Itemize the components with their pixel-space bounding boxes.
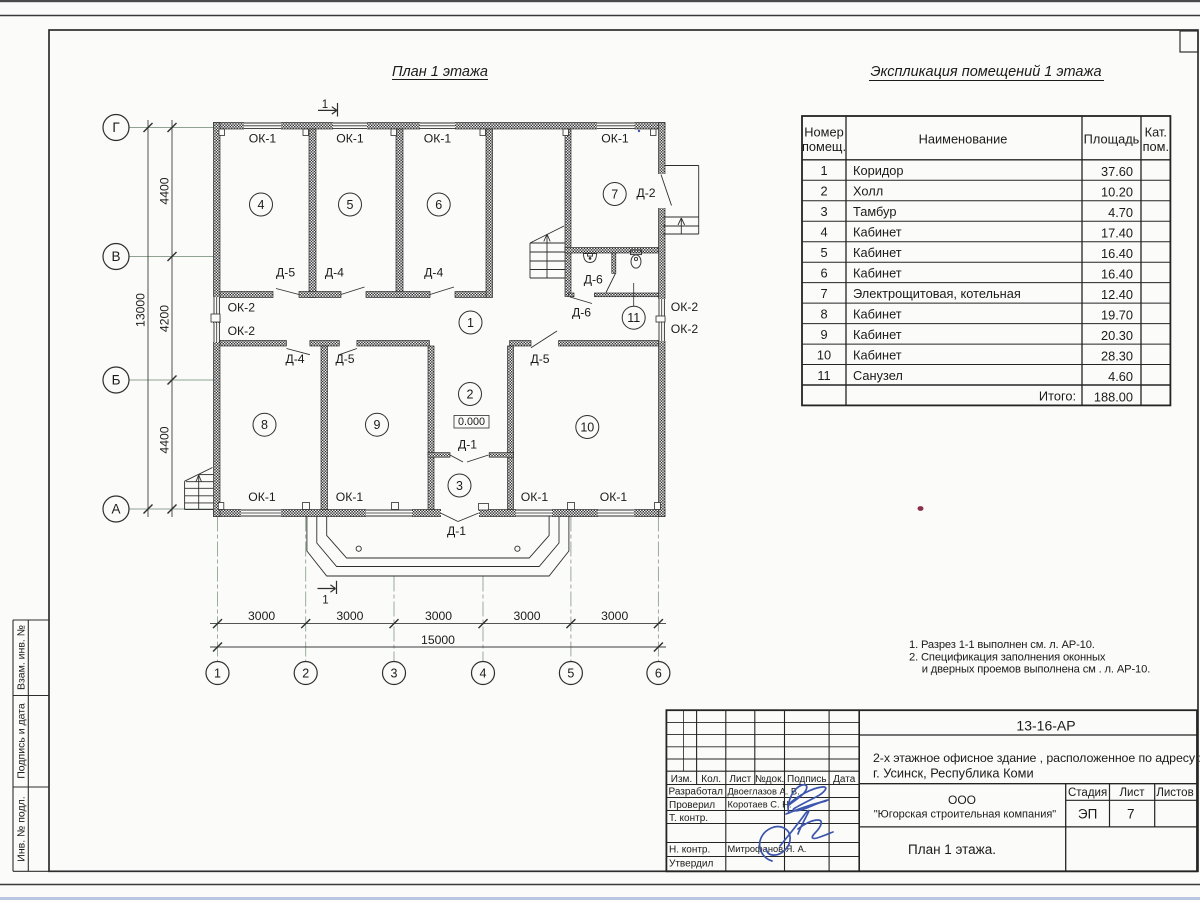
svg-text:ОК-2: ОК-2 (228, 324, 256, 338)
svg-text:Взам. инв. №: Взам. инв. № (16, 625, 28, 690)
svg-text:Итого:: Итого: (1039, 388, 1076, 403)
svg-text:1. Разрез 1-1 выполнен см. л.: 1. Разрез 1-1 выполнен см. л. АР-10. (909, 639, 1095, 651)
svg-text:Коридор: Коридор (853, 163, 904, 178)
svg-text:1: 1 (467, 316, 474, 330)
svg-text:Н. контр.: Н. контр. (669, 845, 710, 856)
svg-text:4400: 4400 (158, 426, 172, 453)
svg-text:13000: 13000 (134, 293, 148, 327)
svg-text:9: 9 (374, 418, 381, 432)
svg-text:Кол.: Кол. (701, 774, 721, 785)
svg-text:Тамбур: Тамбур (853, 204, 896, 219)
svg-text:ОК-2: ОК-2 (671, 322, 699, 336)
svg-text:3000: 3000 (336, 609, 363, 623)
svg-text:2: 2 (302, 666, 309, 680)
svg-text:4400: 4400 (158, 177, 172, 204)
svg-text:ОК-1: ОК-1 (336, 490, 364, 504)
svg-text:8: 8 (820, 306, 827, 321)
svg-text:6: 6 (655, 666, 662, 680)
svg-text:Д-6: Д-6 (584, 273, 603, 287)
svg-text:Площадь: Площадь (1084, 132, 1140, 147)
svg-text:и дверных проемов выполнена см: и дверных проемов выполнена см . л. АР-1… (922, 664, 1151, 676)
svg-text:Б: Б (112, 373, 121, 388)
svg-text:2: 2 (467, 388, 474, 402)
svg-text:7: 7 (820, 286, 827, 301)
svg-text:4.60: 4.60 (1108, 369, 1133, 384)
svg-text:11: 11 (817, 368, 830, 383)
svg-text:8: 8 (261, 418, 268, 432)
svg-text:Листов: Листов (1156, 787, 1193, 799)
svg-text:3000: 3000 (248, 609, 275, 623)
svg-text:ООО: ООО (948, 793, 976, 807)
svg-text:Электрощитовая, котельная: Электрощитовая, котельная (853, 286, 1021, 301)
svg-text:ОК-2: ОК-2 (671, 300, 699, 314)
svg-text:1: 1 (214, 666, 221, 680)
svg-text:3: 3 (391, 666, 398, 680)
svg-text:4: 4 (258, 198, 265, 212)
svg-text:Экспликация помещений 1 этажа: Экспликация помещений 1 этажа (870, 64, 1101, 80)
svg-text:7: 7 (611, 188, 618, 202)
svg-text:помещ.: помещ. (802, 139, 846, 154)
svg-text:Разработал: Разработал (669, 786, 724, 798)
svg-text:А: А (111, 502, 120, 517)
svg-text:План 1 этажа.: План 1 этажа. (908, 842, 996, 857)
svg-text:3: 3 (820, 204, 827, 219)
svg-text:3: 3 (456, 479, 463, 493)
svg-text:Д-4: Д-4 (285, 352, 304, 366)
svg-text:ОК-1: ОК-1 (521, 490, 549, 504)
svg-text:4200: 4200 (158, 305, 172, 332)
svg-text:3000: 3000 (425, 609, 452, 623)
svg-text:28.30: 28.30 (1101, 348, 1133, 363)
svg-text:5: 5 (567, 666, 574, 680)
svg-text:Двоеглазов А. В.: Двоеглазов А. В. (728, 786, 800, 796)
svg-text:ОК-2: ОК-2 (228, 301, 256, 315)
svg-text:Коротаев С. Н.: Коротаев С. Н. (728, 800, 792, 810)
svg-text:2: 2 (820, 184, 827, 199)
svg-text:Кат.: Кат. (1145, 125, 1167, 140)
svg-text:ЭП: ЭП (1078, 807, 1097, 822)
svg-text:13-16-АР: 13-16-АР (1016, 718, 1075, 734)
svg-text:12.40: 12.40 (1101, 287, 1133, 302)
svg-text:3000: 3000 (601, 609, 628, 623)
svg-text:10.20: 10.20 (1101, 185, 1133, 200)
svg-text:4: 4 (820, 225, 827, 240)
svg-text:Дата: Дата (833, 774, 856, 785)
svg-text:Стадия: Стадия (1068, 787, 1107, 799)
svg-text:В: В (111, 249, 120, 264)
svg-text:20.30: 20.30 (1101, 328, 1133, 343)
svg-text:Кабинет: Кабинет (853, 245, 902, 260)
svg-text:Номер: Номер (804, 125, 843, 140)
svg-text:Д-5: Д-5 (335, 352, 354, 366)
svg-text:Д-5: Д-5 (530, 352, 549, 366)
svg-text:6: 6 (820, 265, 827, 280)
svg-text:2. Спецификация заполнения око: 2. Спецификация заполнения оконных (909, 652, 1106, 664)
svg-text:Лист: Лист (729, 774, 751, 785)
svg-text:Проверил: Проверил (669, 800, 715, 811)
svg-text:Д-4: Д-4 (424, 266, 443, 280)
svg-text:9: 9 (820, 327, 827, 342)
svg-text:Кабинет: Кабинет (853, 225, 902, 240)
svg-text:Санузел: Санузел (853, 368, 903, 383)
svg-text:Д-1: Д-1 (447, 524, 466, 538)
svg-text:Подпись и дата: Подпись и дата (16, 703, 28, 779)
svg-text:1: 1 (820, 163, 827, 178)
svg-text:188.00: 188.00 (1094, 389, 1133, 404)
svg-text:ОК-1: ОК-1 (600, 490, 628, 504)
svg-text:Утвердил: Утвердил (669, 859, 713, 870)
svg-text:"Югорская строительная компани: "Югорская строительная компания" (874, 809, 1057, 821)
svg-text:№док.: №док. (755, 774, 784, 785)
svg-text:Кабинет: Кабинет (853, 306, 902, 321)
svg-text:19.70: 19.70 (1101, 307, 1133, 322)
svg-text:Холл: Холл (853, 184, 883, 199)
svg-text:Кабинет: Кабинет (853, 327, 902, 342)
svg-text:Кабинет: Кабинет (853, 265, 902, 280)
svg-text:5: 5 (820, 245, 827, 260)
svg-text:4.70: 4.70 (1108, 205, 1133, 220)
svg-text:Д-1: Д-1 (458, 438, 477, 452)
svg-text:10: 10 (817, 347, 831, 362)
svg-text:Инв. № подл.: Инв. № подл. (16, 796, 28, 861)
svg-text:Г: Г (112, 120, 120, 135)
svg-text:1: 1 (322, 595, 328, 607)
svg-text:Д-4: Д-4 (325, 266, 344, 280)
svg-text:Т. контр.: Т. контр. (669, 813, 708, 824)
svg-text:0.000: 0.000 (458, 416, 485, 428)
svg-text:1: 1 (322, 99, 328, 111)
svg-text:Наименование: Наименование (919, 132, 1008, 147)
svg-text:Д-5: Д-5 (276, 266, 295, 280)
svg-text:16.40: 16.40 (1101, 246, 1133, 261)
svg-text:15000: 15000 (421, 633, 455, 647)
svg-text:37.60: 37.60 (1101, 164, 1133, 179)
svg-text:пом.: пом. (1143, 139, 1169, 154)
svg-text:3000: 3000 (513, 609, 540, 623)
svg-text:17.40: 17.40 (1101, 226, 1133, 241)
svg-text:5: 5 (347, 198, 354, 212)
svg-text:16.40: 16.40 (1101, 266, 1133, 281)
svg-text:2-х этажное офисное здание , р: 2-х этажное офисное здание , расположенн… (873, 751, 1200, 765)
svg-text:Кабинет: Кабинет (853, 347, 902, 362)
svg-text:Лист: Лист (1120, 787, 1146, 799)
svg-text:План 1 этажа: План 1 этажа (392, 64, 488, 80)
svg-text:10: 10 (580, 421, 594, 435)
svg-text:Д-6: Д-6 (572, 306, 591, 320)
svg-text:11: 11 (627, 311, 640, 325)
svg-text:4: 4 (480, 666, 487, 680)
svg-text:6: 6 (435, 198, 442, 212)
svg-text:7: 7 (1127, 807, 1135, 822)
svg-text:ОК-1: ОК-1 (424, 132, 452, 146)
svg-text:Подпись: Подпись (787, 774, 827, 785)
svg-text:г. Усинск, Республика Коми: г. Усинск, Республика Коми (873, 766, 1034, 781)
svg-text:ОК-1: ОК-1 (249, 132, 277, 146)
svg-text:Д-2: Д-2 (636, 186, 655, 200)
svg-text:ОК-1: ОК-1 (248, 490, 276, 504)
svg-text:ОК-1: ОК-1 (336, 132, 364, 146)
svg-text:Изм.: Изм. (671, 774, 692, 785)
svg-text:ОК-1: ОК-1 (601, 132, 629, 146)
